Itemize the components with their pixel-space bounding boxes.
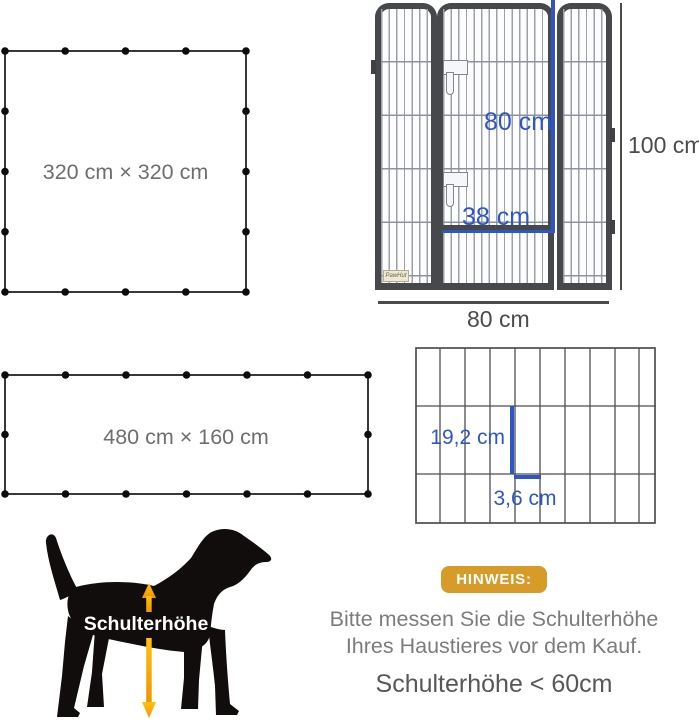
door-height-label: 80 cm [484, 108, 552, 137]
dog-silhouette-diagram: Schulterhöhe [10, 528, 310, 720]
mesh-grid-diagram: 19,2 cm 3,6 cm [415, 347, 657, 527]
fence-bars [443, 232, 548, 283]
brand-logo: PawHut [383, 270, 409, 282]
square-size-label: 320 cm × 320 cm [43, 160, 209, 184]
fence-panel-right [557, 3, 612, 290]
panel-width-line [378, 301, 609, 304]
fence-door-bottom-band [437, 232, 554, 290]
mesh-horizontal-gap-label: 3,6 cm [493, 487, 556, 510]
fence-panel-image: PawHut 80 cm 38 cm 100 cm 80 cm [370, 0, 699, 332]
notice-badge: HINWEIS: [441, 566, 547, 593]
notice-line3: Schulterhöhe < 60cm [295, 670, 693, 699]
latch-tongue [446, 72, 454, 95]
panel-height-line [620, 3, 622, 290]
door-latch-top [443, 60, 468, 75]
panel-width-label: 80 cm [467, 306, 530, 333]
fence-bars [563, 9, 606, 283]
panel-height-label: 100 cm [628, 132, 699, 159]
mesh-vertical-gap-label: 19,2 cm [430, 426, 505, 449]
rectangle-floorplan: 480 cm × 160 cm [0, 368, 375, 500]
product-infographic: 320 cm × 320 cm 480 cm × 160 cm [0, 0, 699, 720]
hinge-tab [371, 60, 376, 74]
square-floorplan: 320 cm × 320 cm [0, 45, 255, 300]
fence-bars [381, 9, 431, 283]
notice-line2: Ihres Haustieres vor dem Kauf. [295, 633, 693, 660]
door-latch-bottom [443, 172, 468, 187]
shoulder-height-label: Schulterhöhe [84, 613, 209, 635]
hinge-tab [610, 220, 615, 234]
notice-block: HINWEIS: Bitte messen Sie die Schulterhö… [295, 566, 693, 699]
rectangle-size-label: 480 cm × 160 cm [103, 425, 269, 449]
latch-tongue [446, 184, 454, 207]
notice-line1: Bitte messen Sie die Schulterhöhe [295, 606, 693, 633]
shoulder-arrow-down [142, 638, 156, 718]
door-width-label: 38 cm [462, 203, 530, 232]
fence-panel-left [375, 3, 437, 290]
hinge-tab [610, 128, 615, 142]
